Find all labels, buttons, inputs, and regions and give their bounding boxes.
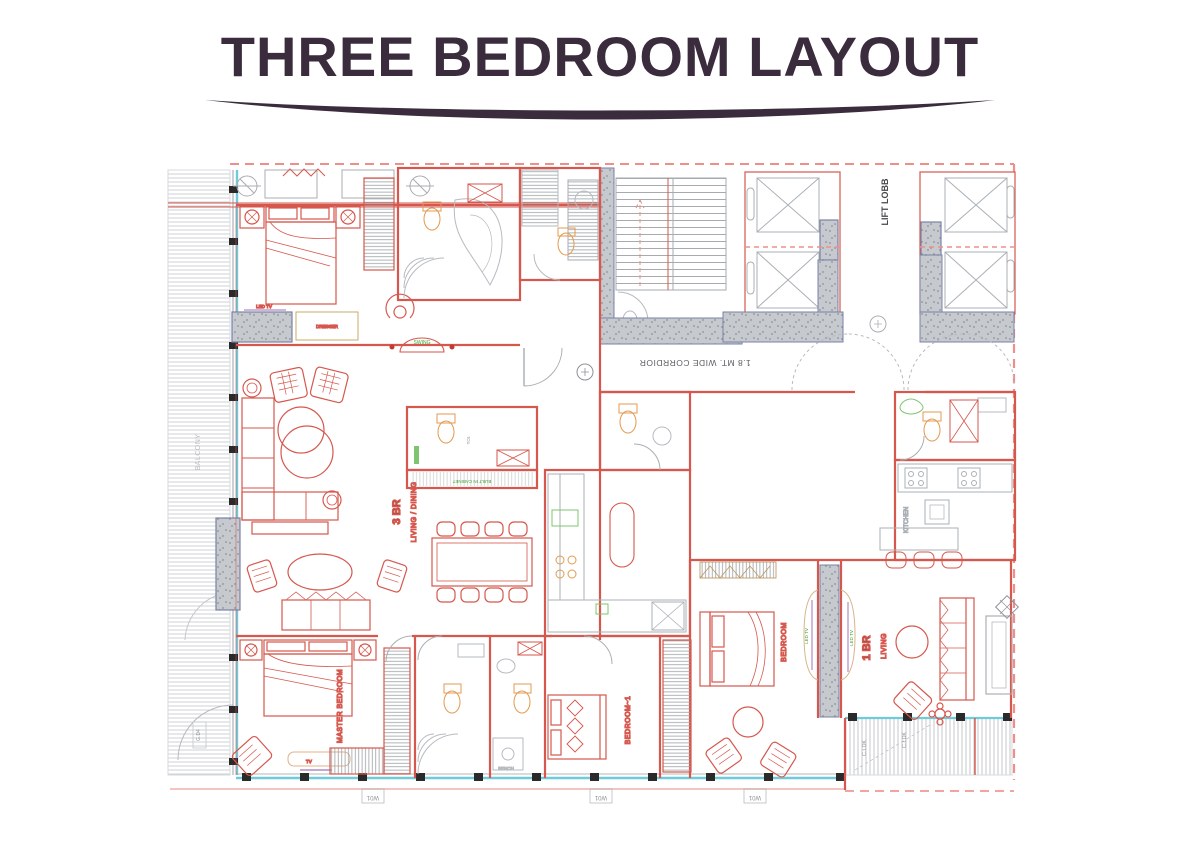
balcony-left: BALCONY G.D4 — [168, 170, 240, 775]
dresser-area: DRESSER LED TV — [232, 294, 414, 342]
brochure-page: THREE BEDROOM LAYOUT — [0, 0, 1200, 848]
living-dining-label: LIVING / DINING — [411, 482, 418, 543]
deck-tag-2: C.LDK — [902, 732, 908, 749]
bed — [548, 695, 606, 759]
deck-tag-1: C.LDK — [862, 740, 868, 757]
bedroom-label: BEDROOM — [781, 622, 788, 662]
svg-text:W01: W01 — [594, 794, 607, 800]
kitchen-3br — [548, 474, 686, 632]
master-bedroom-label: MASTER BEDROOM — [337, 669, 344, 743]
armchair — [269, 367, 308, 403]
svg-text:W01: W01 — [366, 794, 379, 800]
master-bath — [418, 636, 484, 774]
balcony-label: BALCONY — [195, 434, 202, 471]
unit-3br-label: 3 BR — [391, 499, 403, 524]
corridor-label: 1.8 MT. WIDE CORRDIOR — [639, 358, 751, 368]
living-label: LIVING — [881, 633, 888, 659]
walk-in-closet — [330, 748, 384, 774]
armchair — [759, 741, 797, 779]
bath-2: BENCH — [493, 642, 542, 771]
lift-bank-2: LIFT LOBB — [880, 172, 1015, 342]
armchair — [705, 737, 743, 775]
built-in-cabinet-label: BUILT IN CABINET — [452, 479, 491, 484]
lift-bank-1 — [723, 172, 843, 342]
walk-in-closet — [384, 648, 410, 774]
bed — [700, 612, 774, 686]
tv-partition: LED TV LED TV — [804, 565, 855, 717]
wardrobe — [663, 640, 691, 772]
page-title: THREE BEDROOM LAYOUT — [221, 25, 979, 88]
led-tv-label: LED TV — [804, 628, 809, 644]
armchair — [892, 680, 933, 721]
bench-label: BENCH — [498, 766, 514, 771]
bedroom-1br: BEDROOM — [700, 562, 797, 778]
toilet-room-center: TOI. BUILT IN CABINET — [412, 404, 671, 567]
coffee-table — [278, 407, 333, 478]
apartment-walls — [168, 168, 1015, 790]
window-tag-3: W01 — [744, 789, 766, 803]
living-room: 3 BR LIVING / DINING — [242, 366, 418, 542]
bedroom-1-label: BEDROOM~1 — [625, 696, 632, 745]
svg-text:G.D4: G.D4 — [196, 729, 202, 741]
deck-right: C.LDK C.LDK — [845, 713, 1012, 775]
bed — [266, 206, 336, 304]
title-block: THREE BEDROOM LAYOUT — [0, 24, 1200, 89]
sofa — [940, 598, 974, 700]
floor-plan: BALCONY G.D4 W01 — [0, 0, 1200, 848]
swing-label: SWING — [414, 340, 431, 346]
stair-core — [600, 168, 742, 344]
unit-1br-label: 1 BR — [861, 635, 873, 660]
entry-door — [524, 348, 562, 386]
toi-label: TOI. — [466, 436, 471, 445]
master-suite: TV MASTER BEDROOM — [231, 636, 412, 777]
tv-label: TV — [306, 759, 312, 764]
round-table — [896, 626, 928, 658]
dining-table-8 — [432, 522, 532, 602]
round-table — [246, 554, 407, 593]
window-tag-2: W01 — [590, 789, 612, 803]
svg-text:W01: W01 — [748, 794, 761, 800]
title-swoosh — [205, 100, 995, 120]
dining-area — [246, 522, 532, 630]
bedroom-1: BEDROOM~1 — [548, 636, 691, 772]
armchair — [310, 366, 349, 403]
living-1br: 1 BR LIVING — [861, 596, 1018, 725]
l-sofa — [242, 398, 338, 534]
led-tv-label: LED TV — [256, 304, 272, 309]
bath-1br — [900, 398, 1006, 460]
wardrobe — [364, 178, 394, 270]
dresser-label: DRESSER — [316, 324, 339, 329]
kitchen-1br: KITCHEN — [880, 464, 1012, 568]
kitchen-label: KITCHEN — [904, 507, 910, 533]
chaise — [610, 503, 634, 567]
bath-top-1 — [404, 184, 502, 298]
bench-sofa — [282, 592, 370, 630]
round-table — [733, 707, 763, 737]
led-tv-label: LED TV — [849, 630, 854, 646]
window-tag-1: W01 — [362, 789, 384, 803]
tv-console — [986, 616, 1012, 694]
lift-lobby-label: LIFT LOBB — [880, 178, 890, 225]
